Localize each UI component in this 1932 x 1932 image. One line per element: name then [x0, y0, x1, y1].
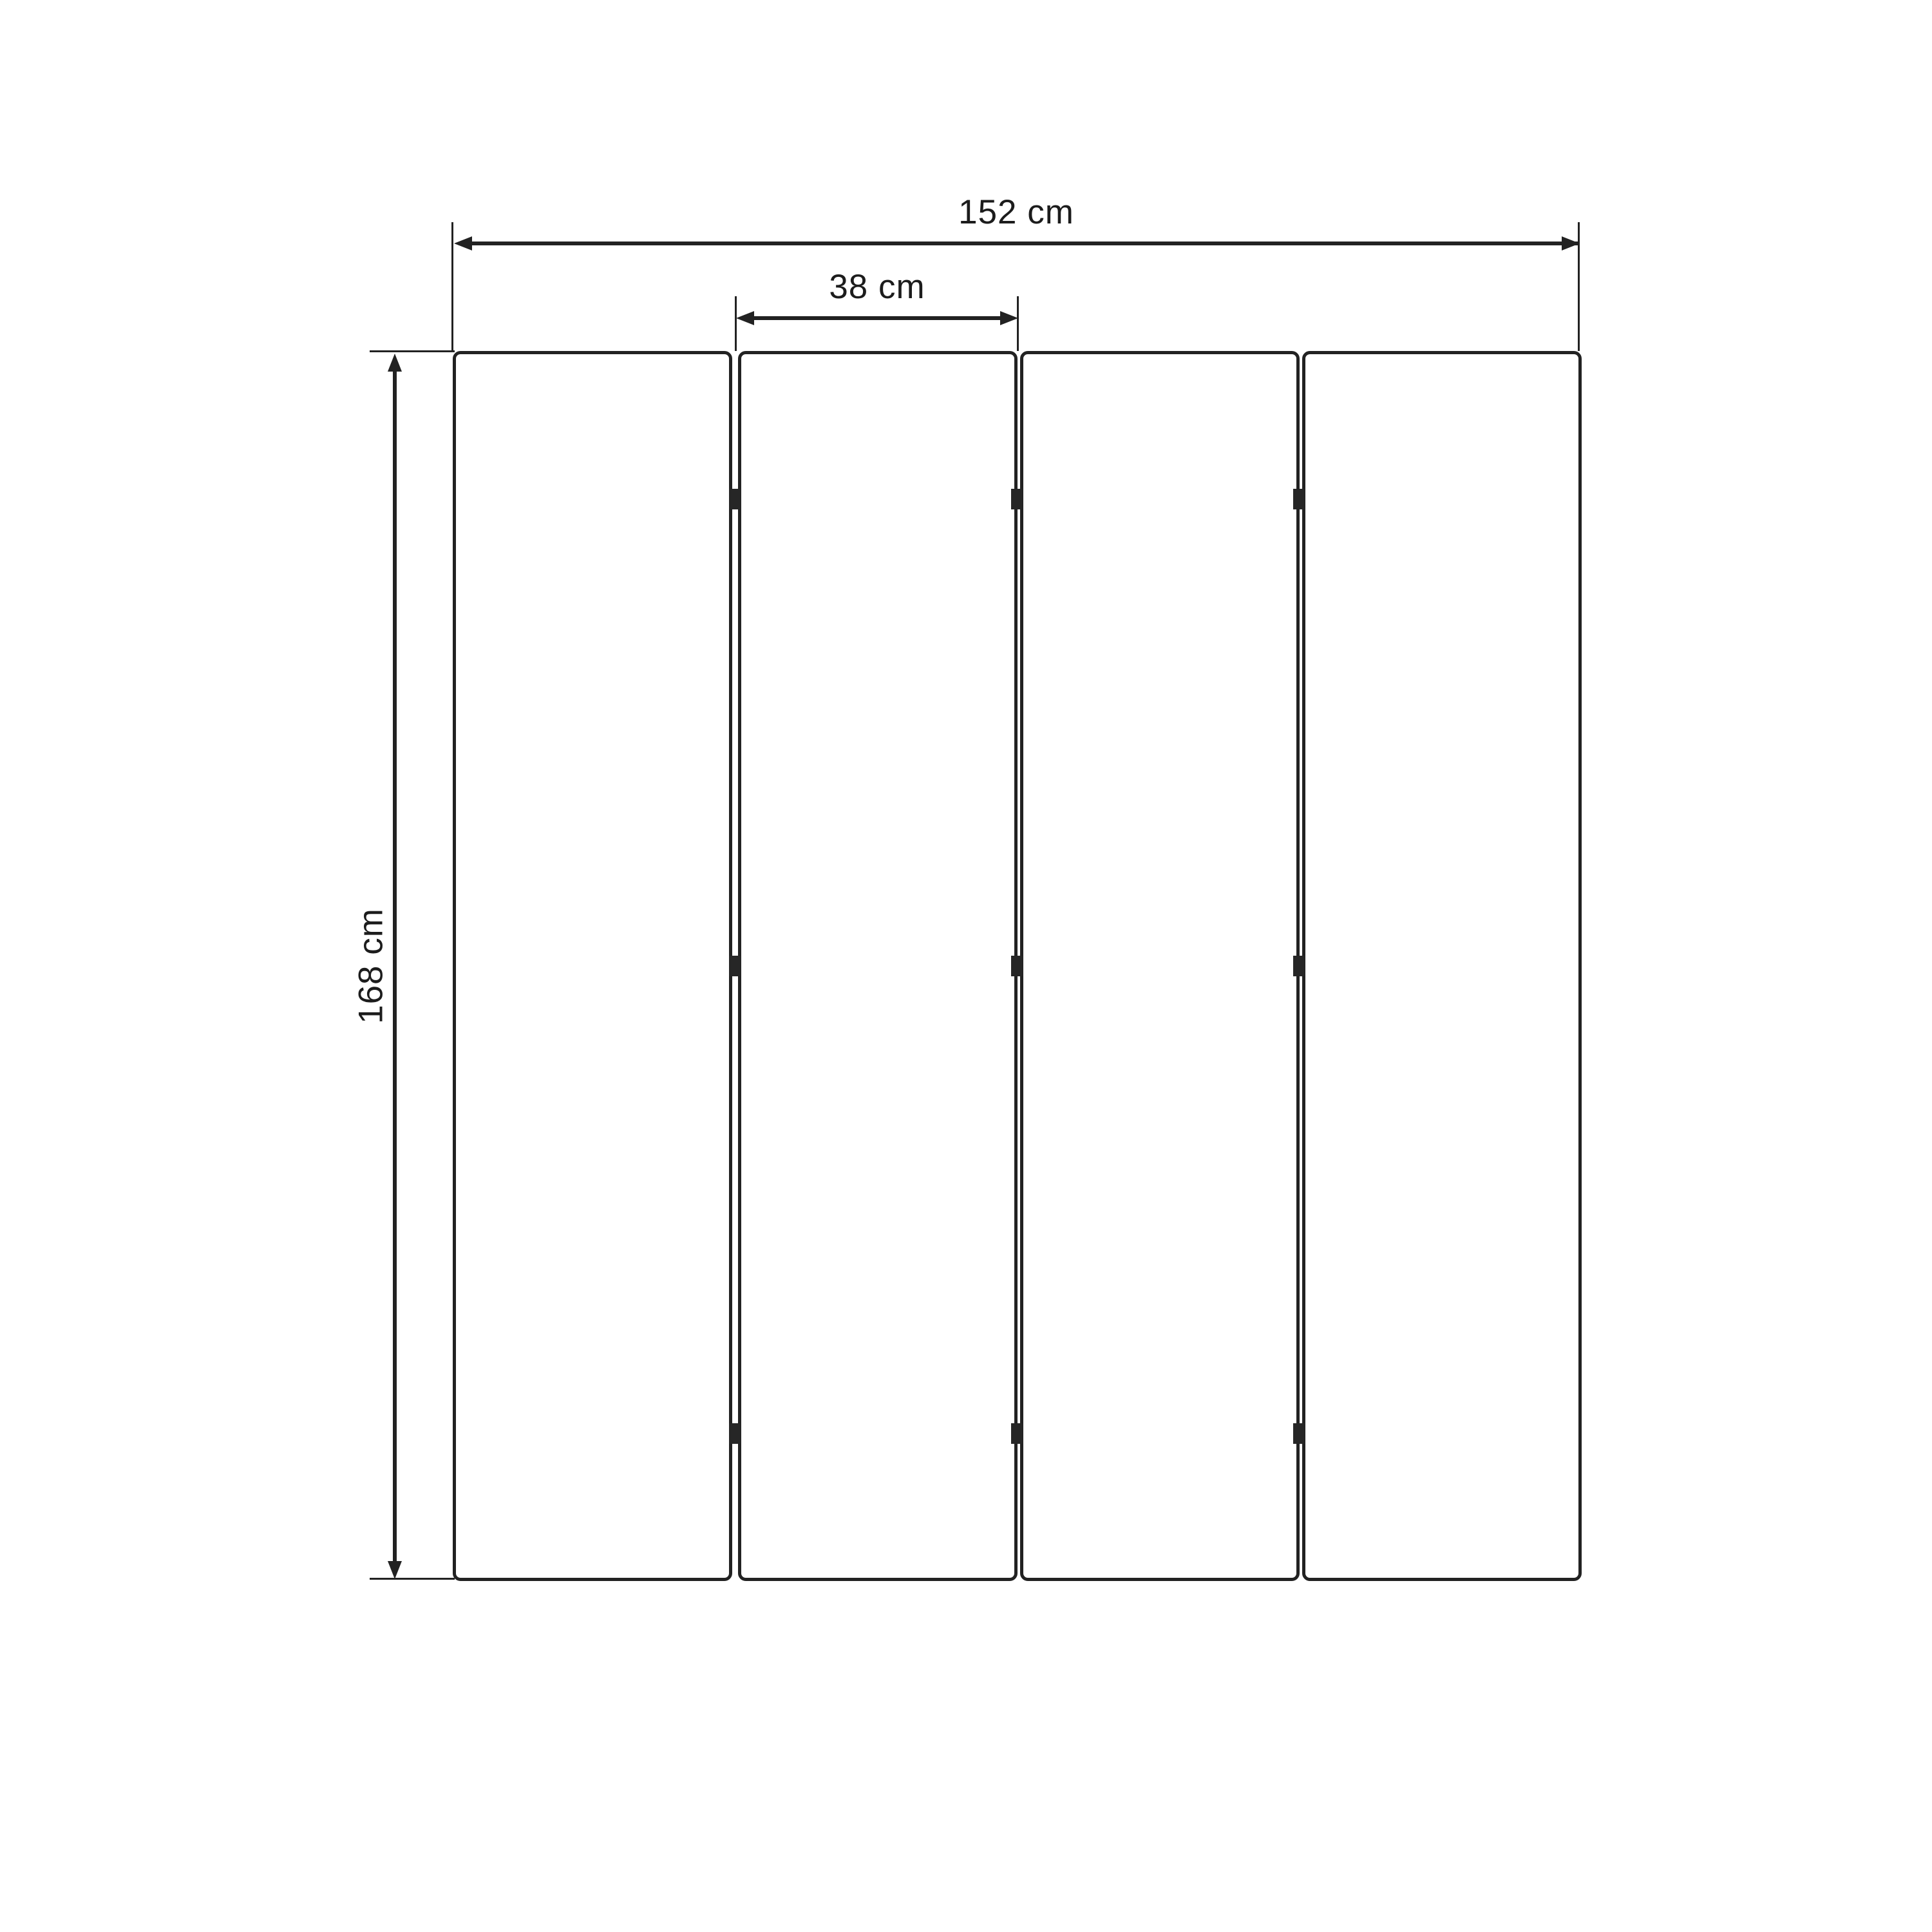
- hinge: [1011, 1423, 1023, 1444]
- arrowhead-down-icon: [388, 1561, 402, 1579]
- arrowhead-right-icon: [1562, 236, 1580, 251]
- panel-1: [453, 351, 732, 1581]
- total-width-extension-line-left: [451, 222, 453, 351]
- panel-4: [1302, 351, 1582, 1581]
- total-width-label: 152 cm: [958, 195, 1074, 229]
- arrowhead-up-icon: [388, 354, 402, 372]
- hinge: [729, 956, 741, 976]
- total-width-dimension-line: [470, 241, 1578, 245]
- panel-width-label: 38 cm: [829, 270, 925, 304]
- height-dimension-line: [393, 367, 397, 1565]
- arrowhead-left-icon: [454, 236, 472, 251]
- panel-2: [738, 351, 1018, 1581]
- folding-screen-dimension-diagram: 152 cm 38 cm 168 cm: [0, 0, 1932, 1932]
- height-extension-line-bottom: [370, 1578, 455, 1580]
- panel-3: [1020, 351, 1300, 1581]
- hinge: [1011, 956, 1023, 976]
- hinge: [1011, 489, 1023, 509]
- arrowhead-left-icon: [736, 311, 754, 325]
- arrowhead-right-icon: [1000, 311, 1018, 325]
- hinge: [729, 489, 741, 509]
- hinge: [1293, 956, 1305, 976]
- panel-width-dimension-line: [752, 316, 1002, 320]
- hinge: [1293, 489, 1305, 509]
- hinge: [729, 1423, 741, 1444]
- hinge: [1293, 1423, 1305, 1444]
- height-extension-line-top: [370, 350, 455, 352]
- height-label: 168 cm: [354, 908, 388, 1024]
